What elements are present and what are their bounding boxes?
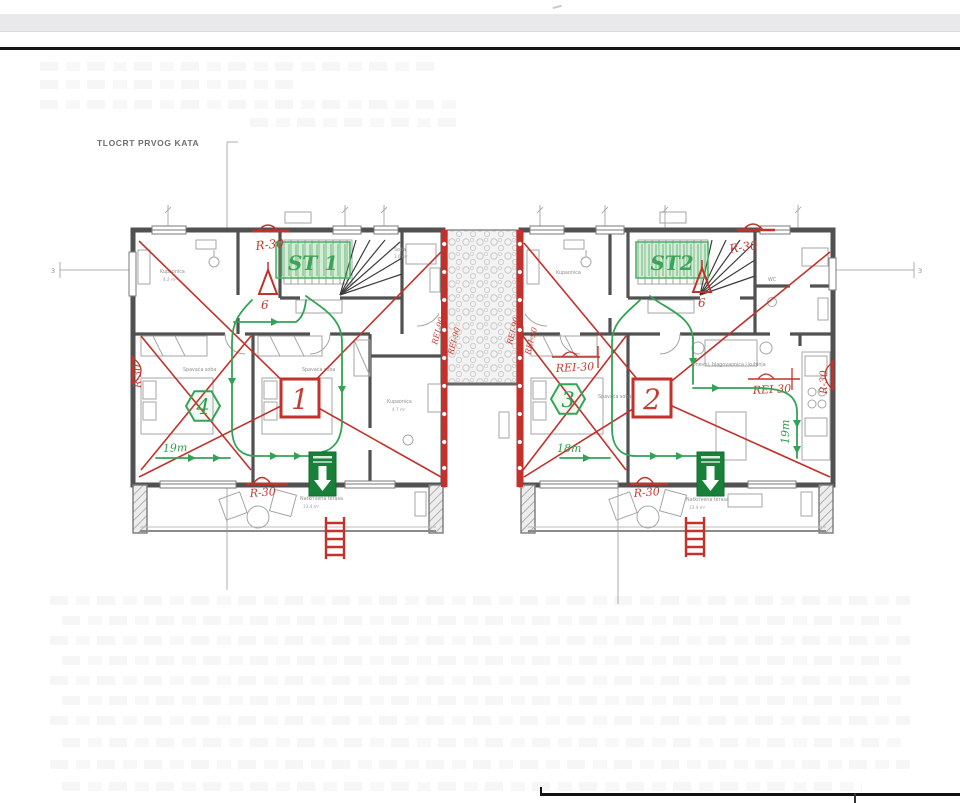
escape-ladder	[326, 517, 344, 559]
exit-sign	[309, 452, 336, 496]
entry-door-leaf	[499, 412, 509, 438]
escape-distance-side: 19m	[779, 420, 792, 444]
room-label: Dnevni, blagovaonica i kuhinja	[692, 362, 766, 368]
room-badge: 4	[195, 395, 209, 419]
unit-2-terrace: Natkrivena terasa 13.4 m²	[521, 485, 833, 533]
room-area: 4.2 m²	[163, 277, 177, 282]
room-area: 3.6 m²	[394, 254, 408, 259]
escape-distance: 18m	[557, 442, 581, 455]
unit-1-staircase: ST 1	[276, 240, 402, 313]
room-badge: 3	[561, 388, 574, 412]
evac-triangle	[259, 270, 277, 294]
rei-rating-label: REI-30	[554, 360, 594, 375]
unit-1-terrace: Natkrivena terasa 13.4 m²	[133, 485, 443, 533]
room-label: Natkrivena terasa	[686, 497, 729, 503]
unit-2-stair-label: ST2	[650, 251, 693, 275]
escape-distance: 19m	[163, 441, 188, 455]
room-label: WC	[768, 277, 777, 283]
axis-mark-left: 3	[51, 267, 55, 275]
evac-minutes: 6	[698, 296, 706, 310]
fire-rating-label: R-30	[632, 485, 660, 500]
titleblock-border-serif	[540, 787, 542, 793]
floor-plan-drawing: 3 3	[0, 0, 960, 803]
unit-number: 2	[642, 383, 661, 416]
unit-number: 1	[291, 383, 309, 416]
fire-rating-label: R-30	[819, 370, 830, 395]
room-label: Natkrivena terasa	[300, 496, 343, 502]
dimension-ticks	[165, 205, 801, 230]
room-label: Spavaća soba	[598, 393, 631, 400]
legend-tag-right	[660, 212, 686, 223]
firewall-rating-label: REI-90	[523, 326, 539, 356]
legend-tag-left	[285, 212, 311, 223]
room-label: Kupaonica	[556, 270, 581, 276]
axis-mark-right: 3	[918, 267, 922, 275]
titleblock-top-border	[540, 793, 960, 796]
room-label: Spavaća soba	[183, 366, 216, 373]
room-label: Soba	[394, 247, 406, 253]
floor-plan-page: { "page": { "title": "TLOCRT PRVOG KATA"…	[0, 0, 960, 803]
escape-ladder	[686, 517, 704, 557]
titleblock-divider-tick	[854, 793, 856, 803]
room-label: Spavaća soba	[302, 366, 335, 373]
fire-rating-label: R-30	[248, 485, 276, 500]
room-area: 13.4 m²	[303, 504, 320, 509]
fire-rating-label: R-30	[133, 364, 144, 389]
room-area: 4.7 m²	[392, 407, 406, 412]
room-area: 13.4 m²	[689, 505, 706, 510]
room-label: Kupaonica	[387, 399, 412, 405]
unit-1-stair-label: ST 1	[288, 251, 338, 275]
exit-sign	[697, 452, 724, 496]
evac-minutes: 6	[261, 298, 269, 312]
